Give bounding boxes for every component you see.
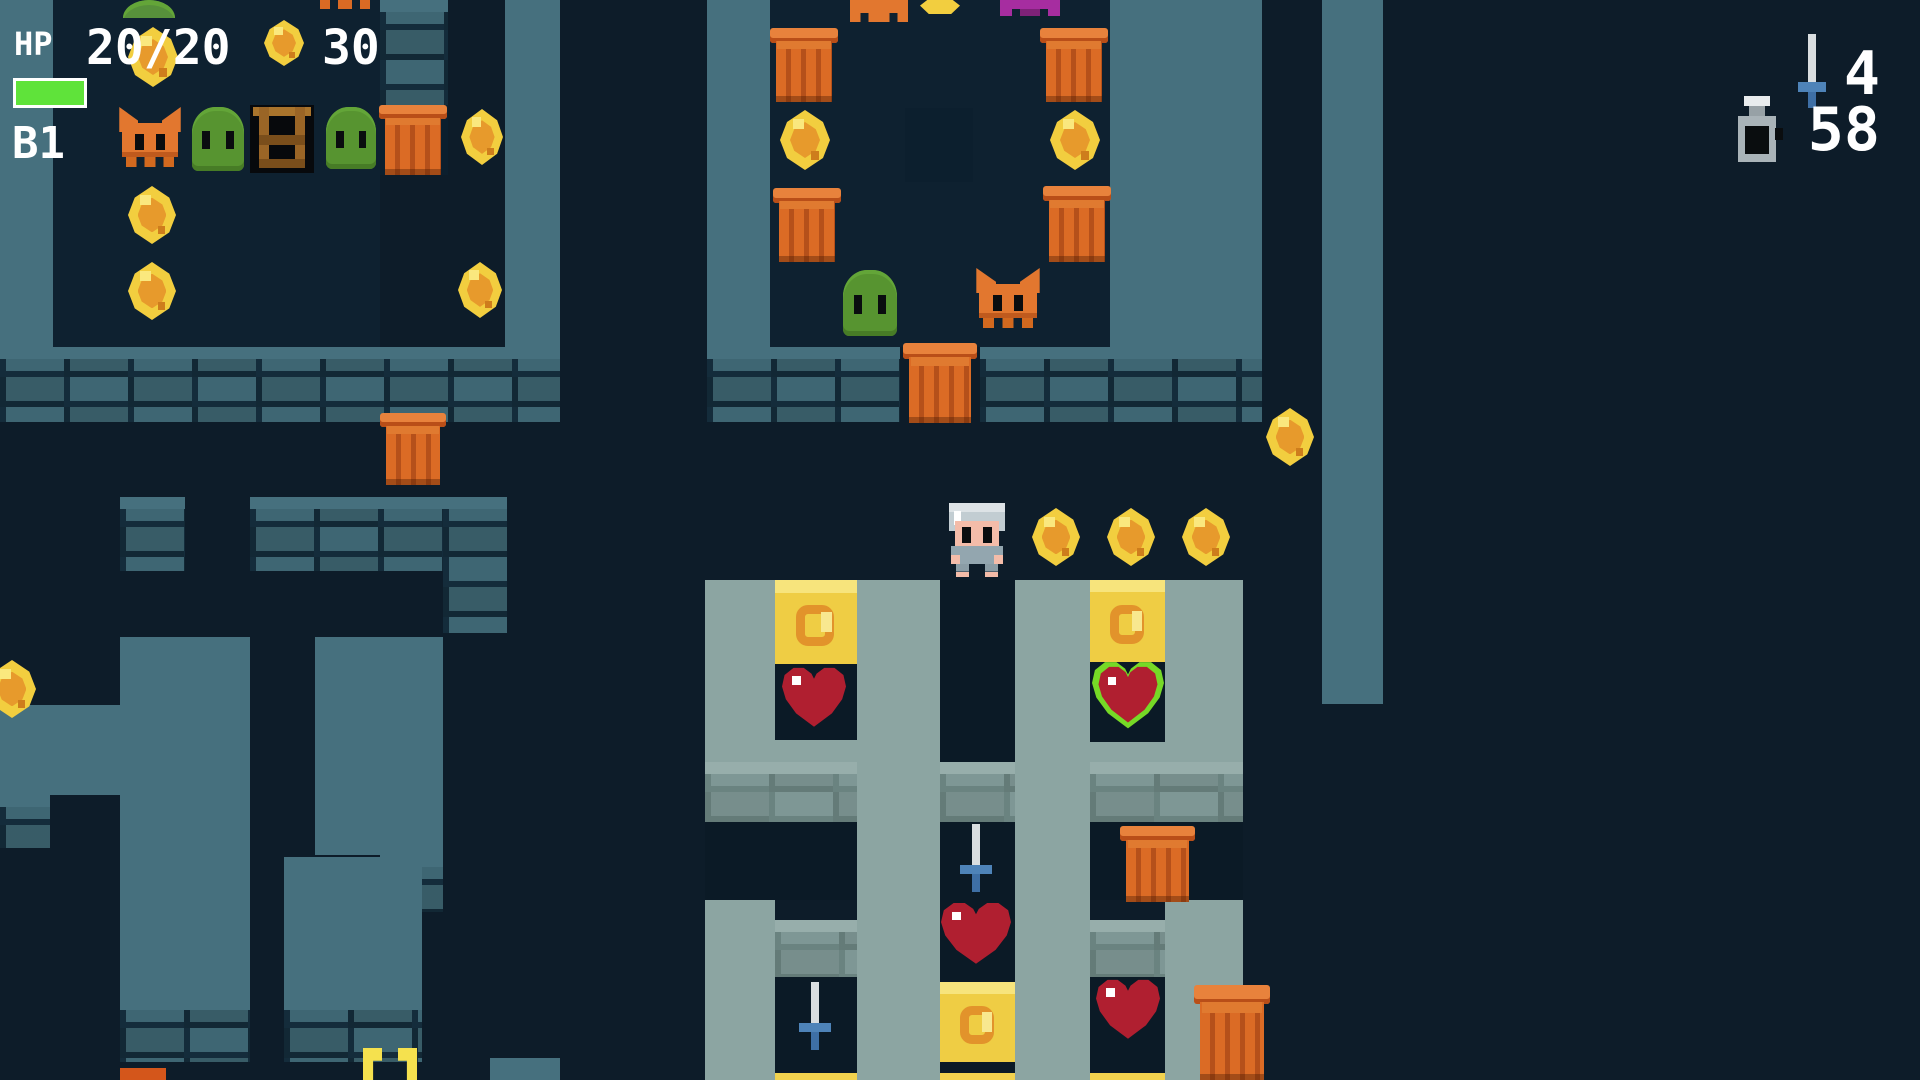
wall-sage <box>1090 920 1165 977</box>
wall-sage <box>775 920 857 977</box>
wall <box>120 497 185 571</box>
coin-sprite <box>461 109 503 165</box>
wall <box>443 497 507 633</box>
wall <box>490 1058 560 1080</box>
wall <box>505 0 560 347</box>
wall <box>980 347 1262 422</box>
barrel-sprite <box>1045 186 1109 262</box>
sword-sprite <box>797 982 833 1050</box>
ytile-sprite <box>775 580 857 664</box>
wall <box>315 637 443 855</box>
player-sprite <box>945 503 1009 577</box>
barrel-sprite <box>1042 28 1106 102</box>
wall <box>0 347 560 422</box>
slime-sprite <box>192 107 244 171</box>
wall-sage <box>940 762 1015 822</box>
wall-sage <box>1015 580 1090 1080</box>
floor-cell <box>905 108 973 182</box>
barrel-sprite <box>775 188 839 262</box>
floor-cell <box>940 580 1015 762</box>
wall-sage <box>705 762 857 822</box>
ysl-sprite <box>940 1073 1015 1080</box>
barrel-sprite <box>382 413 444 485</box>
sword-count: 4 <box>1844 44 1880 104</box>
flask-icon <box>1738 96 1776 162</box>
wall-sage <box>857 580 940 1080</box>
ytile-sprite <box>940 982 1015 1062</box>
ladder-sprite <box>250 105 314 173</box>
ytile-sprite <box>1090 580 1165 662</box>
wall-sage <box>775 740 857 762</box>
coin-sprite <box>1182 508 1230 566</box>
batslv-sprite <box>850 0 908 22</box>
ysl-sprite <box>1090 1073 1165 1080</box>
prongs-sprite <box>363 1048 417 1080</box>
floor-cell <box>705 822 857 900</box>
floor-cell <box>53 0 380 347</box>
ysl-sprite <box>775 1073 857 1080</box>
sword-sprite <box>958 824 994 892</box>
bat-sprite <box>118 107 182 167</box>
wall <box>250 497 443 571</box>
barrel-sprite <box>772 28 836 102</box>
wall-sage <box>705 900 775 1080</box>
wall <box>0 705 120 795</box>
wall <box>1322 0 1383 704</box>
slime-sprite <box>326 107 376 169</box>
wall <box>284 857 422 998</box>
game-stage[interactable]: HP 20/20 30 B1 4 58 <box>0 0 1920 1080</box>
coin-sprite <box>1107 508 1155 566</box>
floor-cell <box>940 1062 1015 1073</box>
pslv-sprite <box>1000 0 1060 16</box>
barrel-sprite <box>381 105 445 175</box>
bat-sprite <box>975 268 1041 328</box>
barrel-sprite <box>1196 985 1268 1080</box>
wall <box>120 998 250 1062</box>
sword-icon <box>1798 34 1826 110</box>
slime-sprite <box>843 270 897 336</box>
oslv-sprite <box>320 0 370 9</box>
wall <box>707 347 900 422</box>
wall-sage <box>1090 742 1165 762</box>
flask-count: 58 <box>1808 100 1880 160</box>
wall <box>1110 0 1262 347</box>
coin-sprite <box>1032 508 1080 566</box>
wall-sage <box>1090 762 1243 822</box>
wall <box>0 795 50 848</box>
wall <box>0 0 53 347</box>
coin-sprite <box>458 262 502 318</box>
barrel-sprite <box>905 343 975 423</box>
wall <box>380 0 448 105</box>
wall <box>707 0 770 347</box>
barrel-sprite <box>1122 826 1193 902</box>
coin-sprite <box>1266 408 1314 466</box>
oslv2-sprite <box>120 1068 166 1080</box>
